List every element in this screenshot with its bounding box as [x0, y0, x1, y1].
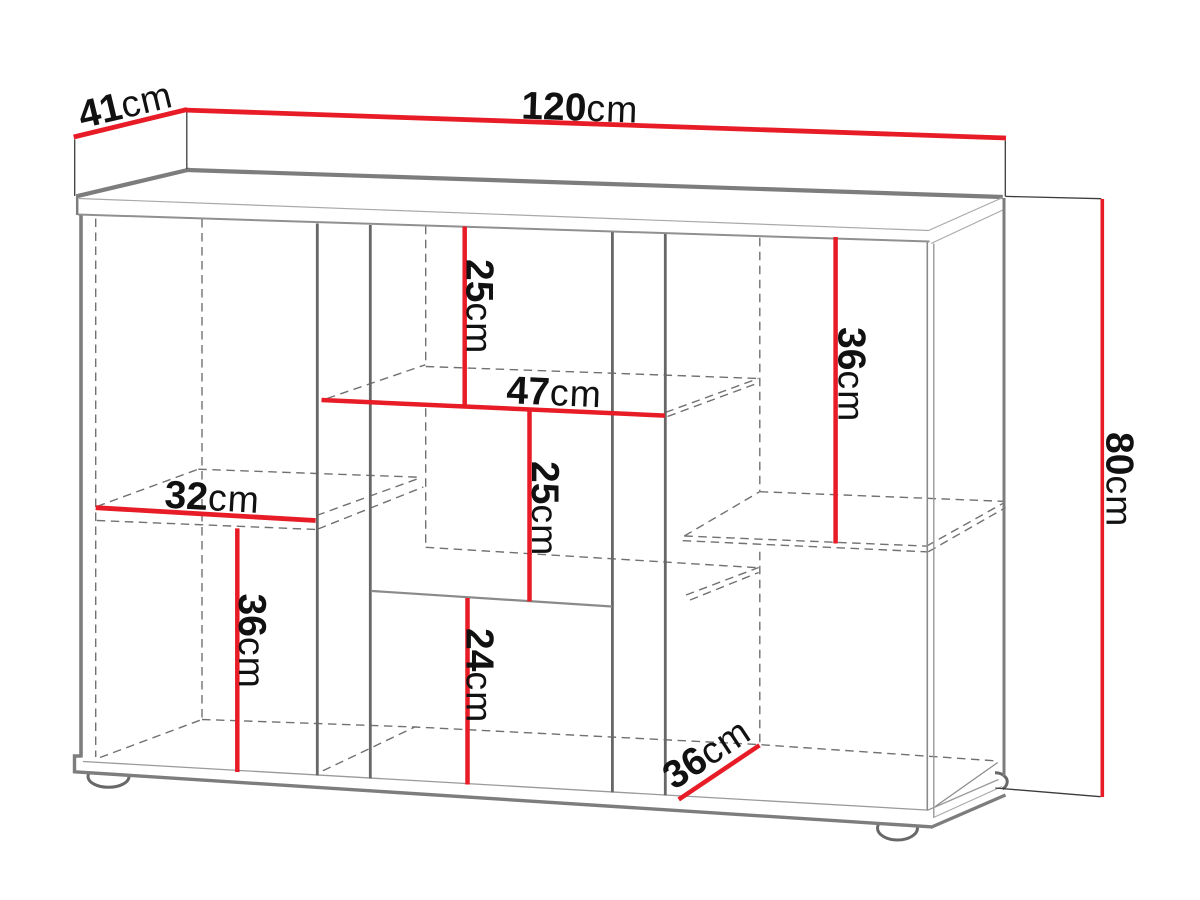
svg-text:36cm: 36cm — [830, 327, 873, 422]
svg-text:80cm: 80cm — [1098, 432, 1141, 527]
svg-text:120cm: 120cm — [521, 85, 640, 132]
svg-text:47cm: 47cm — [506, 369, 603, 416]
svg-text:24cm: 24cm — [458, 628, 501, 723]
svg-text:25cm: 25cm — [523, 461, 566, 556]
svg-text:25cm: 25cm — [458, 259, 501, 354]
svg-text:32cm: 32cm — [163, 474, 261, 522]
svg-text:36cm: 36cm — [230, 594, 273, 689]
